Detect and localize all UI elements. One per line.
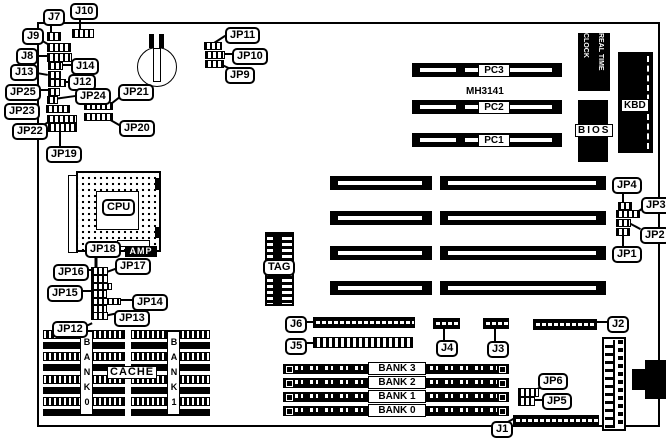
label-j4: J4 [436,340,458,357]
label-jp24: JP24 [75,88,111,105]
label-cpu: CPU [102,199,135,216]
label-jp25: JP25 [5,84,41,101]
label-jp5: JP5 [542,393,572,410]
label-jp21: JP21 [118,84,154,101]
label-jp10: JP10 [232,48,268,65]
label-j10: J10 [70,3,98,20]
isa-slot-4-left [330,281,432,295]
label-jp9: JP9 [225,67,255,84]
isa-slot-3-right [440,246,606,260]
label-j14: J14 [71,58,99,75]
pc3-slot-gap [456,68,465,72]
label-jp13: JP13 [114,310,150,327]
header-jp24 [47,96,58,104]
keyboard-din-connector-neck [632,369,646,390]
capacitor-stem [153,48,161,82]
rtc-chip: REAL TIMECLOCK [578,33,610,91]
label-jp12: JP12 [52,321,88,338]
header-j2 [533,319,597,330]
header-j9 [47,43,71,52]
label-cache: CACHE [107,366,157,379]
label-j8: J8 [16,48,38,65]
label-jp1: JP1 [612,246,642,263]
header-jp12 [91,312,108,320]
power-connector-pins-left [605,340,615,428]
label-pc3: PC3 [478,64,510,77]
label-bios: BIOS [575,124,613,137]
label-j5: J5 [285,338,307,355]
header-jp9 [205,60,224,68]
label-j9: J9 [22,28,44,45]
pc2-slot-gap [456,105,465,109]
label-jp18: JP18 [85,241,121,258]
isa-slot-4-right [440,281,606,295]
pc1-slot-gap [456,138,465,142]
power-connector [602,337,626,431]
label-jp22: JP22 [12,123,48,140]
label-pc2: PC2 [478,101,510,114]
label-tag: TAG [263,259,295,276]
label-jp23: JP23 [4,103,40,120]
cache-bank0-label: BANK0 [80,331,93,415]
header-j14 [48,62,63,70]
label-bank2: BANK 2 [368,376,426,389]
header-jp2b [616,228,630,236]
header-j6 [313,317,415,328]
label-pc1: PC1 [478,134,510,147]
header-j1 [513,415,599,426]
header-jp2a [616,219,631,227]
header-j12 [48,79,66,87]
label-jp2: JP2 [640,227,666,244]
rtc-chip-text: REAL TIMECLOCK [578,33,610,91]
label-jp19: JP19 [46,146,82,163]
label-j1: J1 [491,421,513,438]
header-j7 [47,32,61,41]
header-jp15 [91,290,107,298]
header-jp11 [204,42,222,50]
header-jp3 [616,210,640,218]
isa-slot-1-right [440,176,606,190]
label-jp17: JP17 [115,258,151,275]
amp-chip: AMP [125,246,157,257]
cpu-socket-tab-top [155,178,161,190]
label-jp4: JP4 [612,177,642,194]
header-jp6 [518,388,539,397]
label-jp16: JP16 [53,264,89,281]
leader-line [59,130,61,147]
power-connector-pins-right [618,340,623,428]
header-j13 [48,71,61,79]
header-j3 [483,318,509,329]
cpu-socket-tab-bottom [155,227,161,238]
header-jp14 [91,298,121,305]
leader-line [443,327,445,341]
header-j10 [72,29,94,38]
header-jp4 [618,202,632,210]
label-bank0: BANK 0 [368,404,426,417]
header-jp20 [84,113,113,121]
capacitor-icon [149,34,164,48]
motherboard-diagram: J7 J10 J9 J8 J14 J13 J12 JP25 JP24 JP21 … [0,0,666,440]
header-jp17 [91,275,108,283]
cache-bank1-label: BANK1 [167,331,180,415]
header-j4 [433,318,460,329]
isa-slot-1-left [330,176,432,190]
label-j6: J6 [285,316,307,333]
label-j2: J2 [607,316,629,333]
label-jp20: JP20 [119,120,155,137]
label-kbd: KBD [621,99,649,112]
header-jp16 [91,283,112,290]
label-jp11: JP11 [225,27,260,44]
header-jp23 [46,105,70,113]
header-jp25 [48,88,60,96]
label-j7: J7 [43,9,65,26]
label-bank3: BANK 3 [368,362,426,375]
label-jp15: JP15 [47,285,83,302]
label-jp6: JP6 [538,373,568,390]
isa-slot-2-left [330,211,432,225]
leader-line [494,327,496,342]
isa-slot-2-right [440,211,606,225]
keyboard-din-connector [645,360,666,399]
label-j13: J13 [10,64,38,81]
header-j5 [313,337,413,348]
header-jp19 [48,123,77,132]
header-jp18 [91,267,108,275]
header-jp22 [47,115,77,123]
header-j8 [47,53,72,62]
header-jp5 [518,397,535,406]
label-jp14: JP14 [132,294,168,311]
chipset-id-text: MH3141 [466,86,504,97]
label-bank1: BANK 1 [368,390,426,403]
label-jp3: JP3 [641,197,666,214]
label-j3: J3 [487,341,509,358]
header-jp10 [205,51,225,59]
isa-slot-3-left [330,246,432,260]
